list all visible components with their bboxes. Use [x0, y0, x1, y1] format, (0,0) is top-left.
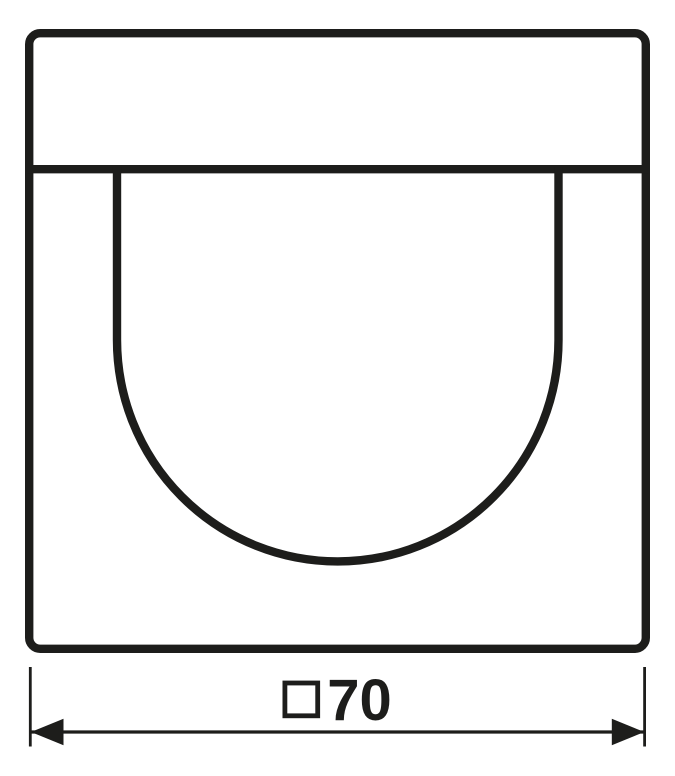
svg-text:70: 70	[327, 668, 392, 733]
